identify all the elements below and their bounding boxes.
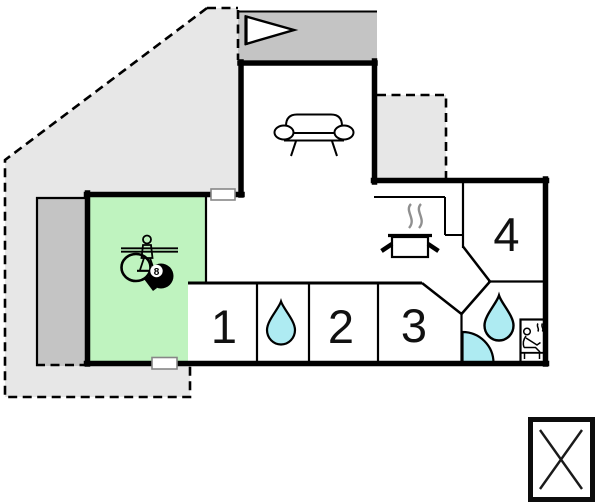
bedroom1-number: 1 — [211, 300, 237, 353]
entrance-door-bottom — [152, 358, 177, 370]
crossed-box-icon — [531, 420, 593, 500]
entrance-door-top — [211, 189, 235, 200]
bedroom3-number: 3 — [401, 299, 427, 352]
terrace-top-right — [377, 95, 446, 180]
billiards-ball-icon: 8 — [149, 264, 174, 289]
bedroom2-number: 2 — [328, 300, 354, 353]
carport-fill — [36, 197, 88, 366]
floor-plan: 8 1 2 3 4 — [0, 0, 600, 504]
ball-number: 8 — [154, 267, 160, 278]
bedroom4-number: 4 — [493, 208, 519, 261]
carport-area — [36, 197, 88, 366]
flag-terrace — [238, 11, 377, 63]
